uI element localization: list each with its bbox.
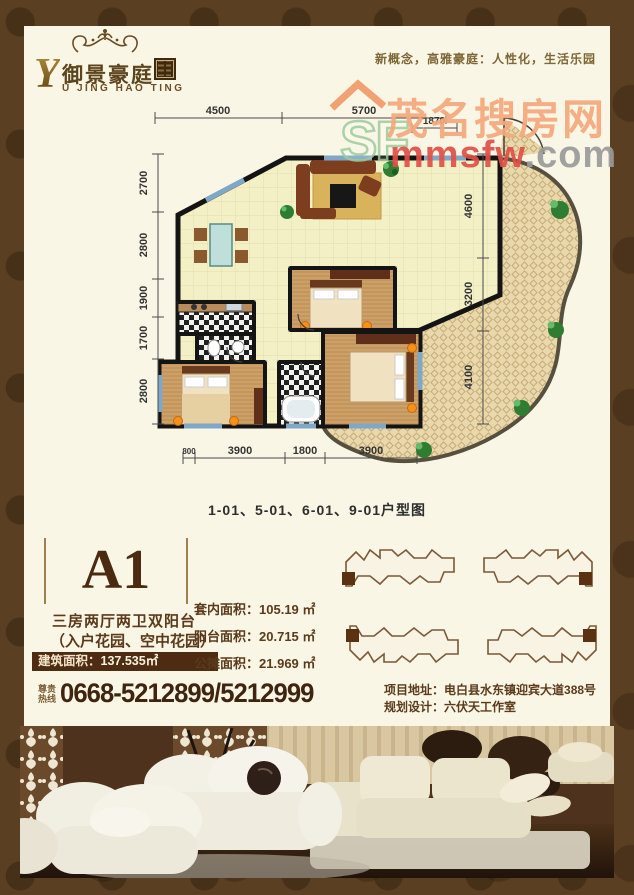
key-plan-4 (488, 626, 596, 662)
lamp-icon (230, 417, 239, 426)
wardrobe (330, 270, 390, 279)
logo-initial: Y (34, 54, 60, 94)
address-value: 电白县水东镇迎宾大道388号 (444, 683, 596, 697)
address-label: 项目地址： (384, 683, 444, 697)
project-address: 项目地址：电白县水东镇迎宾大道388号 (384, 682, 596, 699)
sofa (310, 160, 376, 174)
address-block: 项目地址：电白县水东镇迎宾大道388号 规划设计：六伏天工作室 (384, 682, 596, 716)
area-value: 20.715 ㎡ (259, 629, 315, 644)
key-plan-3 (350, 626, 458, 662)
key-plan-grid (336, 538, 606, 676)
dim-bottom-2: 3900 (228, 445, 252, 457)
sofa (300, 208, 336, 219)
built-area-bar: 建筑面积：137.535㎡ (32, 652, 218, 671)
logo-seal-icon (154, 58, 176, 80)
lamp-icon (408, 344, 417, 353)
area-label: 阳台面积： (194, 629, 259, 644)
hotline-label-line2: 热线 (38, 694, 56, 704)
unit-code-block: A1 (44, 538, 188, 604)
plant-icon (383, 161, 399, 177)
hotline-block: 尊贵 热线 0668-5212899/5212999 (38, 678, 338, 709)
bathroom-1 (197, 334, 254, 362)
dim-left-5: 2800 (138, 379, 150, 403)
brand-logo: Y 御景豪庭 U JING HAO TING (32, 28, 202, 94)
hotline-label: 尊贵 热线 (38, 684, 56, 704)
key-plan-2 (484, 550, 592, 586)
built-area-label: 建筑面积： (38, 654, 101, 668)
wardrobe (356, 334, 416, 344)
area-value: 105.19 ㎡ (259, 602, 315, 617)
dim-right-1: 4600 (463, 194, 475, 218)
sink (232, 341, 244, 353)
kitchen-sink (226, 304, 242, 311)
planning-design: 规划设计：六伏天工作室 (384, 699, 596, 716)
built-area-value: 137.535㎡ (101, 654, 159, 668)
toilet (208, 340, 220, 356)
area-label: 公摊面积： (194, 656, 259, 671)
pillow (90, 807, 150, 837)
dim-left-4: 1700 (138, 326, 150, 350)
design-value: 六伏天工作室 (444, 700, 516, 714)
dim-top-1: 4500 (206, 105, 230, 117)
dim-bottom-3: 1800 (293, 445, 317, 457)
plant-icon (280, 205, 294, 219)
lamp-icon (174, 417, 183, 426)
dim-right-2: 3200 (463, 282, 475, 306)
flyer-page: Y 御景豪庭 U JING HAO TING 新概念，高雅豪庭：人性化，生活乐园… (0, 0, 634, 895)
dim-bottom-4: 3900 (359, 445, 383, 457)
hotline-number: 0668-5212899/5212999 (60, 678, 313, 709)
bathroom-2 (279, 362, 323, 426)
dim-top-2: 5700 (352, 105, 376, 117)
dim-bottom-1: 800 (182, 447, 196, 456)
dim-right-3: 4100 (463, 365, 475, 389)
area-label: 套内面积： (194, 602, 259, 617)
dining-table (210, 224, 232, 266)
lamp-icon (408, 404, 417, 413)
header-slogan: 新概念，高雅豪庭：人性化，生活乐园 (375, 50, 596, 67)
design-label: 规划设计： (384, 700, 444, 714)
unit-layout-line2: （入户花园、空中花园） (50, 630, 215, 651)
dim-left-2: 2800 (138, 233, 150, 257)
interior-photo (20, 726, 614, 878)
kitchen (178, 302, 254, 334)
hotline-label-line1: 尊贵 (38, 684, 56, 694)
key-plan-1 (346, 550, 454, 586)
plan-caption: 1-01、5-01、6-01、9-01户型图 (137, 500, 497, 520)
dim-left-3: 1900 (138, 286, 150, 310)
dim-left-1: 2700 (138, 171, 150, 195)
bedroom-3 (323, 332, 420, 426)
flyer-content: Y 御景豪庭 U JING HAO TING 新概念，高雅豪庭：人性化，生活乐园… (24, 26, 610, 726)
unit-code: A1 (46, 538, 186, 602)
unit-layout-line1: 三房两厅两卫双阳台 (52, 610, 196, 631)
bedroom-2 (160, 362, 265, 426)
coffee-table (330, 184, 356, 208)
floor-plan: 4500 5700 1870 2700 2800 1900 1700 2800 … (124, 90, 604, 490)
bedroom-1 (290, 268, 395, 331)
dark-cushion (247, 761, 281, 795)
area-value: 21.969 ㎡ (259, 656, 315, 671)
logo-flourish-icon (70, 28, 140, 56)
dim-top-3: 1870 (423, 116, 446, 127)
